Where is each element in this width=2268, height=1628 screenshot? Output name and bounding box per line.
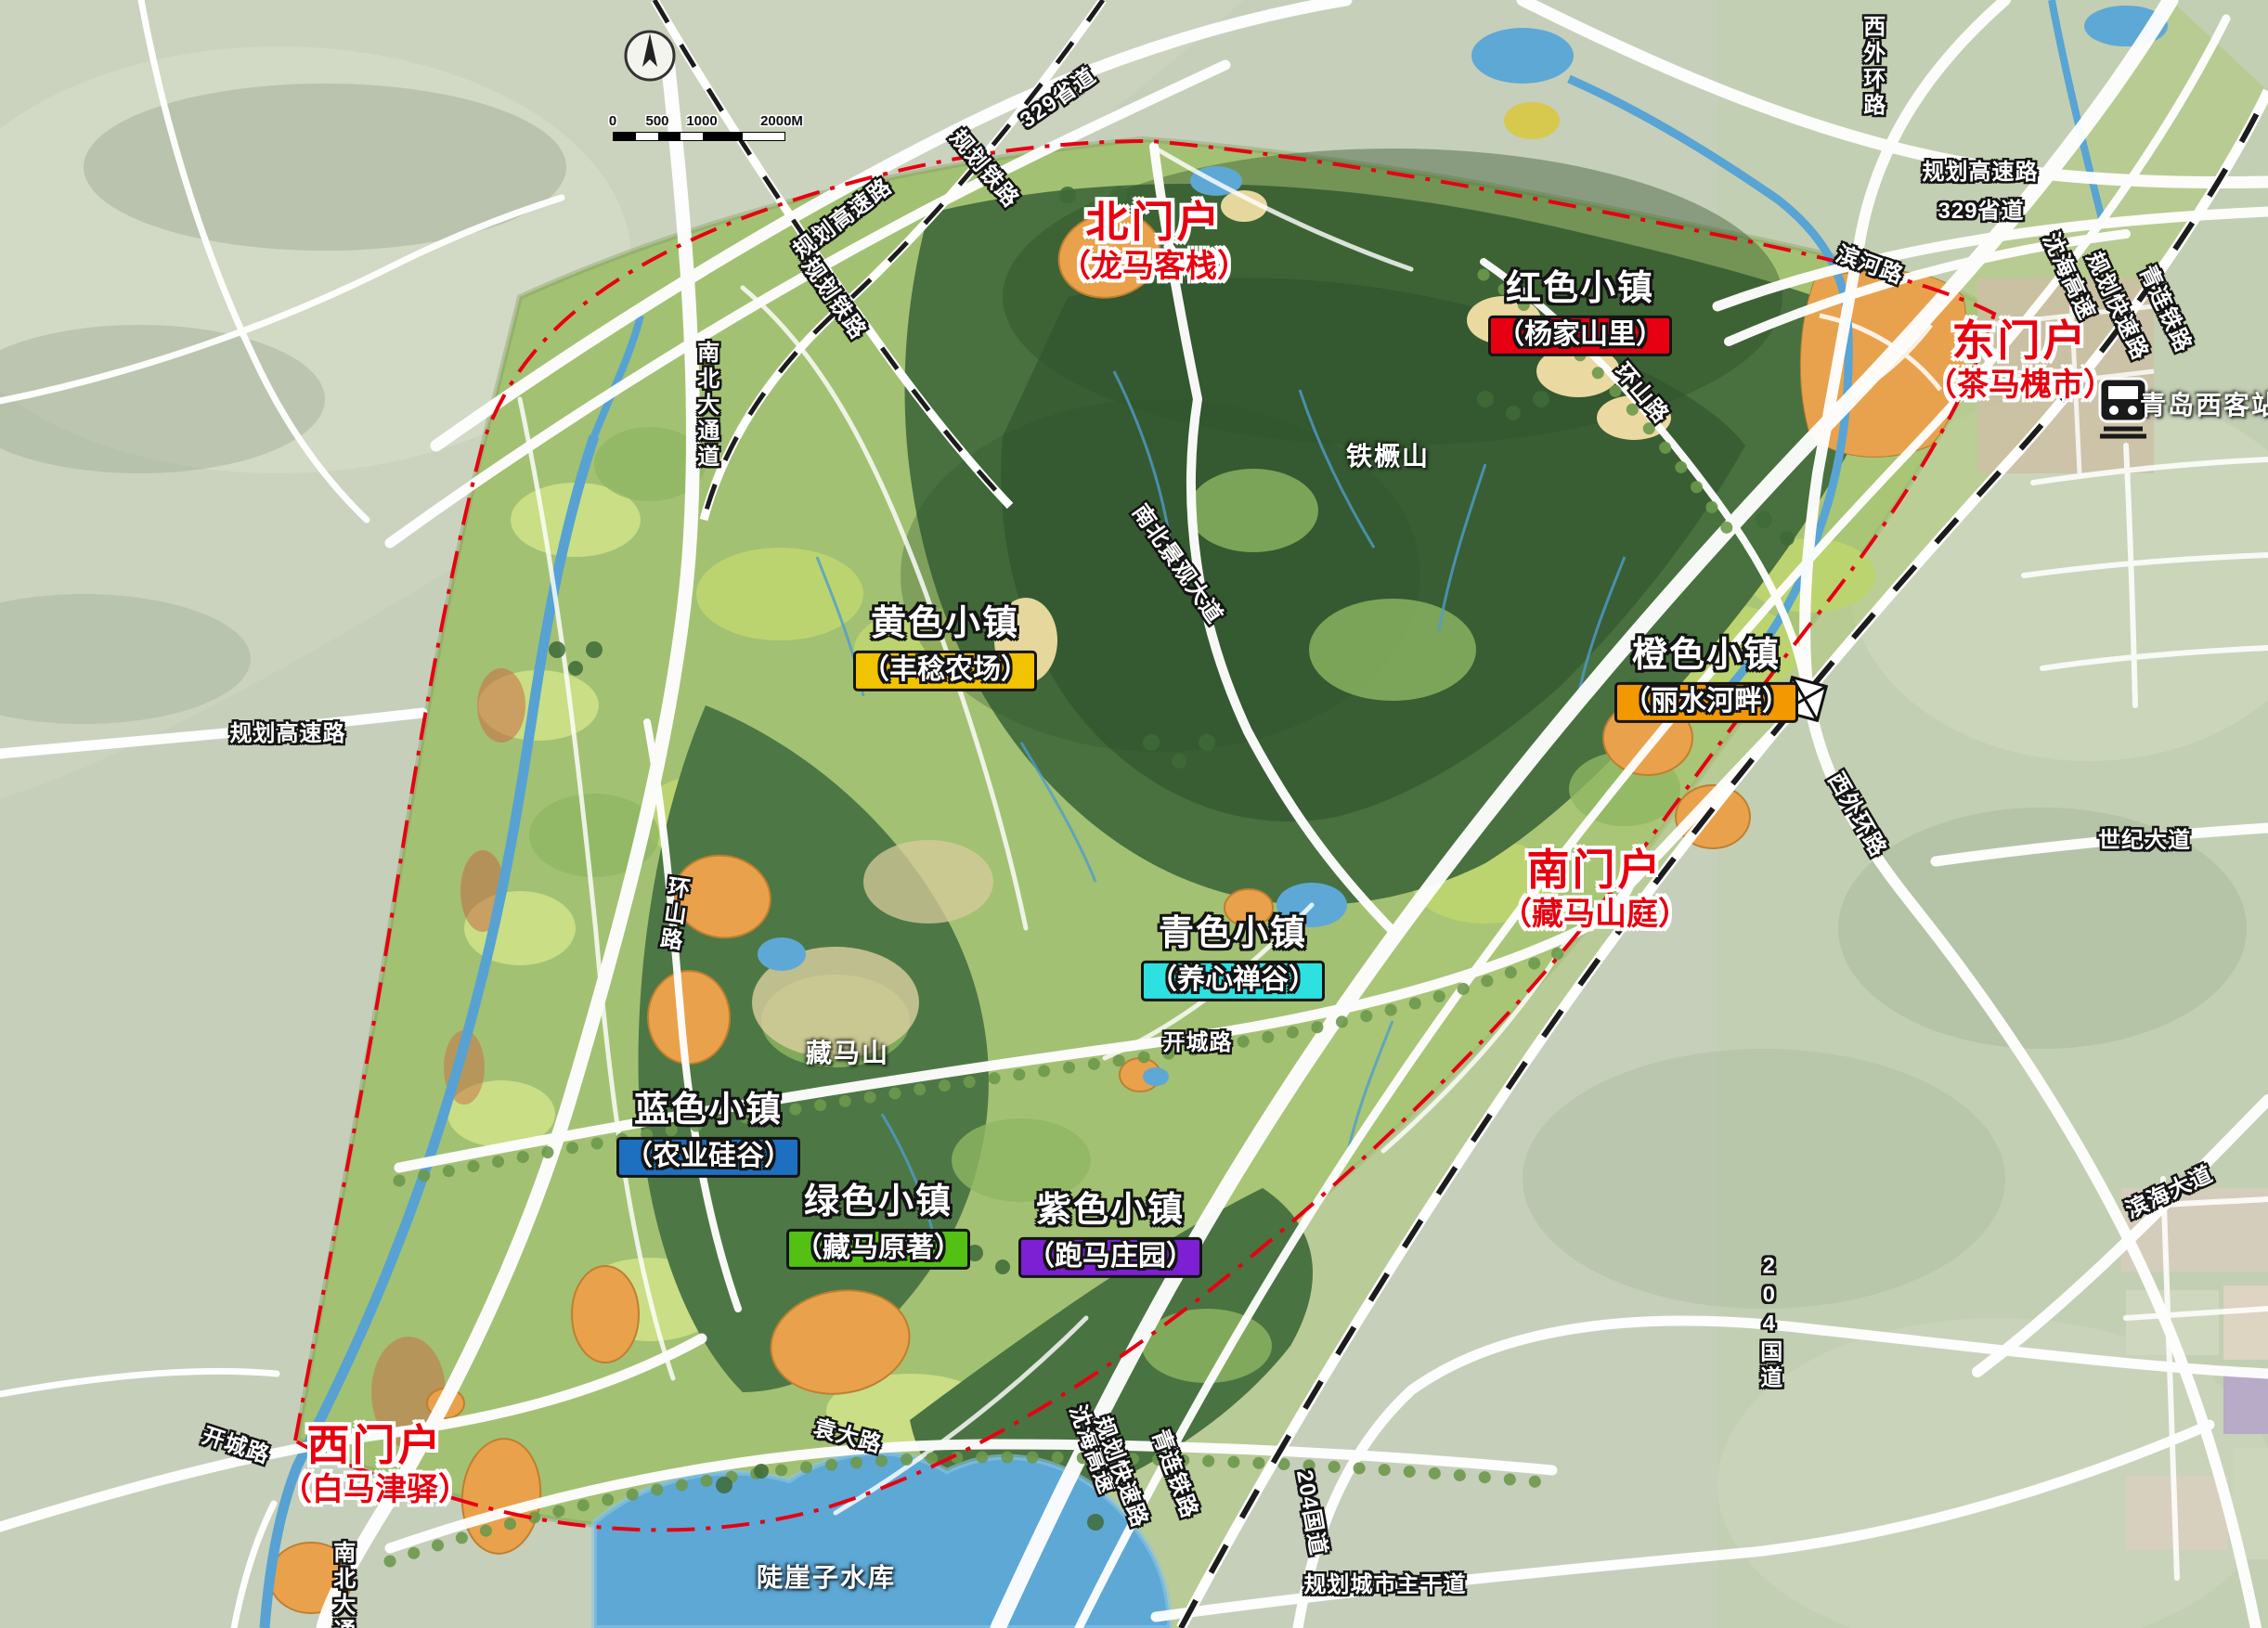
road-label: 开城路 xyxy=(199,1423,273,1468)
road-label: 环山路 xyxy=(1609,358,1673,428)
place-label: 铁橛山 xyxy=(1346,442,1430,472)
place-label: 陡崖子水库 xyxy=(757,1563,896,1593)
road-label: 开城路 xyxy=(1163,1030,1233,1056)
road-label: 滨河路 xyxy=(1833,241,1907,290)
town-subtitle: （丰稔农场） xyxy=(853,651,1037,692)
gate-label-east: 东门户（茶马槐市） xyxy=(1925,317,2115,404)
road-label: 规划高速路 xyxy=(1923,160,2039,186)
gate-label-west: 西门户（白马津驿） xyxy=(280,1421,470,1508)
road-label: 西外环路 xyxy=(1859,15,1885,119)
road-label: 南北景观大道 xyxy=(1127,500,1228,629)
master-plan-map: 0 500 1000 2000M 北门户（龙马客栈）东门户（茶马槐市）南门户（藏… xyxy=(0,0,2268,1628)
road-label: 环山路 xyxy=(654,873,690,954)
town-title: 蓝色小镇 xyxy=(616,1091,800,1131)
gate-title: 东门户 xyxy=(1925,317,2115,366)
label-layer: 北门户（龙马客栈）东门户（茶马槐市）南门户（藏马山庭）西门户（白马津驿）红色小镇… xyxy=(0,0,2268,1628)
town-title: 红色小镇 xyxy=(1488,269,1672,310)
gate-title: 北门户 xyxy=(1059,198,1249,247)
gate-subtitle: （藏马山庭） xyxy=(1500,897,1690,933)
road-label: 规划高速路 xyxy=(789,174,897,264)
road-label: 204国道 xyxy=(1290,1468,1330,1557)
road-label: 袁大路 xyxy=(810,1415,885,1458)
road-label: 329省道 xyxy=(1016,63,1101,134)
road-label: 南北大通道 xyxy=(693,341,719,471)
town-title: 绿色小镇 xyxy=(786,1182,970,1223)
gate-title: 西门户 xyxy=(280,1421,470,1470)
place-label: 藏马山 xyxy=(806,1039,889,1068)
town-subtitle: （农业硅谷） xyxy=(616,1137,800,1179)
town-label-blue: 蓝色小镇（农业硅谷） xyxy=(616,1091,800,1178)
town-label-red: 红色小镇（杨家山里） xyxy=(1488,269,1672,356)
town-subtitle: （丽水河畔） xyxy=(1614,682,1798,724)
gate-title: 南门户 xyxy=(1500,846,1690,895)
road-label: 规划高速路 xyxy=(230,721,346,747)
road-label: 204国道 xyxy=(1756,1254,1782,1392)
gate-subtitle: （茶马槐市） xyxy=(1925,368,2115,404)
town-subtitle: （杨家山里） xyxy=(1488,316,1672,357)
road-label: 滨海大道 xyxy=(2122,1161,2217,1223)
town-subtitle: （藏马原著） xyxy=(786,1229,970,1271)
road-label: 规划城市主干道 xyxy=(1304,1572,1467,1598)
town-label-yellow: 黄色小镇（丰稔农场） xyxy=(853,604,1037,691)
town-title: 紫色小镇 xyxy=(1018,1191,1202,1232)
road-label: 西外环路 xyxy=(1822,769,1891,861)
town-subtitle: （养心禅谷） xyxy=(1141,961,1325,1002)
gate-label-north: 北门户（龙马客栈） xyxy=(1059,198,1249,285)
town-label-orange: 橙色小镇（丽水河畔） xyxy=(1614,636,1798,723)
town-title: 橙色小镇 xyxy=(1614,636,1798,677)
town-subtitle: （跑马庄园） xyxy=(1018,1237,1202,1279)
town-label-green: 绿色小镇（藏马原著） xyxy=(786,1182,970,1270)
road-label: 规划铁路 xyxy=(944,125,1023,213)
road-label: 南北大通道 xyxy=(329,1541,355,1628)
town-title: 青色小镇 xyxy=(1141,914,1325,955)
road-label: 世纪大道 xyxy=(2098,828,2191,854)
town-label-cyan: 青色小镇（养心禅谷） xyxy=(1141,914,1325,1001)
road-label: 规划铁路 xyxy=(797,253,871,344)
gate-label-south: 南门户（藏马山庭） xyxy=(1500,846,1690,933)
town-label-purple: 紫色小镇（跑马庄园） xyxy=(1018,1191,1202,1278)
place-label: 青岛西客站 xyxy=(2140,391,2268,420)
road-label: 青连铁路 xyxy=(1147,1426,1202,1521)
gate-subtitle: （白马津驿） xyxy=(280,1472,470,1508)
road-label: 329省道 xyxy=(1938,199,2024,225)
town-title: 黄色小镇 xyxy=(853,604,1037,645)
gate-subtitle: （龙马客栈） xyxy=(1059,249,1249,285)
